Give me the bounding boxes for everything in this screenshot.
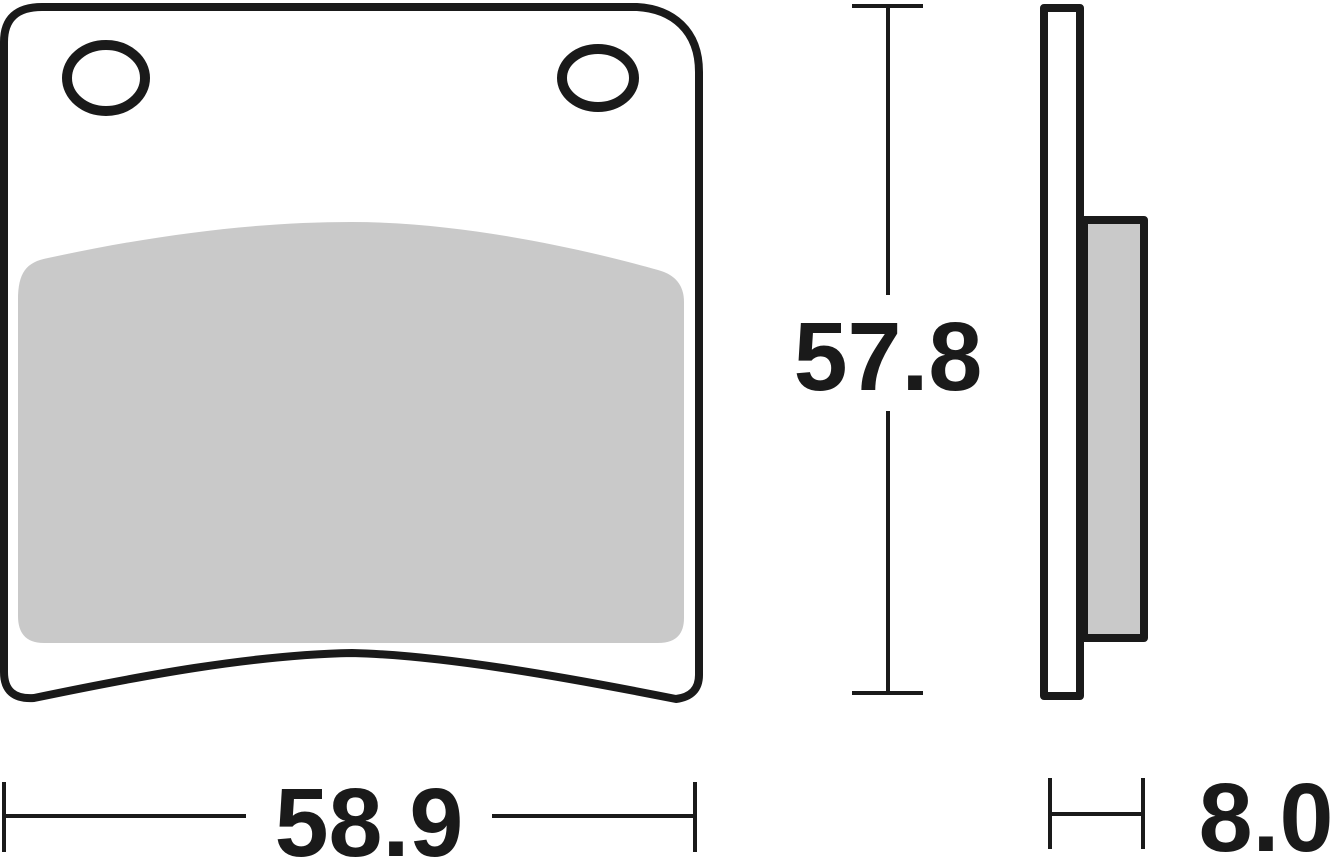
width-dimension-label: 58.9 <box>275 768 464 862</box>
backing-plate-side <box>1044 8 1080 696</box>
thickness-dimension-label: 8.0 <box>1199 763 1334 862</box>
brake-pad-drawing: 58.9 57.8 8.0 <box>0 0 1337 862</box>
side-view <box>1044 8 1144 696</box>
friction-material-front <box>18 222 684 643</box>
technical-drawing-canvas: 58.9 57.8 8.0 <box>0 0 1337 862</box>
mounting-hole-right-icon <box>562 49 634 107</box>
thickness-dimension <box>1050 778 1143 849</box>
height-dimension-label: 57.8 <box>794 302 983 411</box>
mounting-hole-left-icon <box>67 45 145 111</box>
front-view <box>4 7 699 699</box>
friction-material-side <box>1084 220 1144 638</box>
